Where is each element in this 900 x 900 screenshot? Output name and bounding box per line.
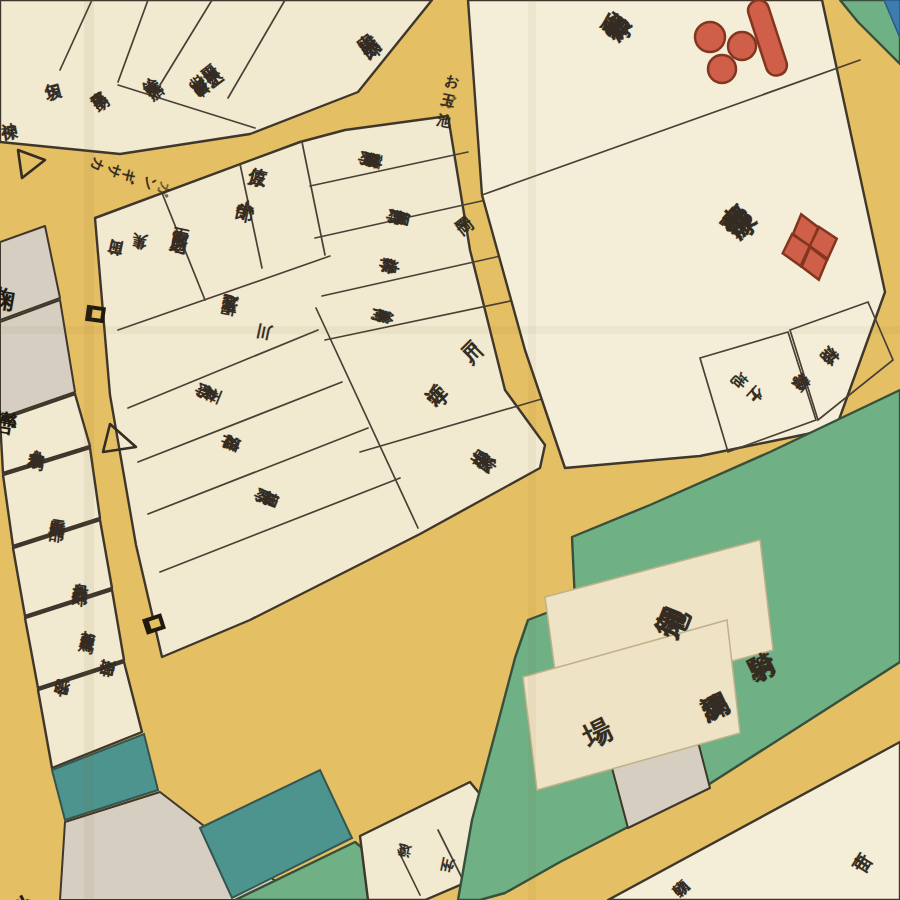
map-canvas: 太田雄太郎平田半之丞鈴木大膳庄司平助神尾織部匂坂神保鞠轡永井求馬天野民部奥村次郎… — [0, 0, 900, 900]
map-shapes — [0, 0, 900, 900]
gate-icon — [85, 305, 106, 323]
plot-okumura: 奥村次郎 — [74, 569, 91, 578]
